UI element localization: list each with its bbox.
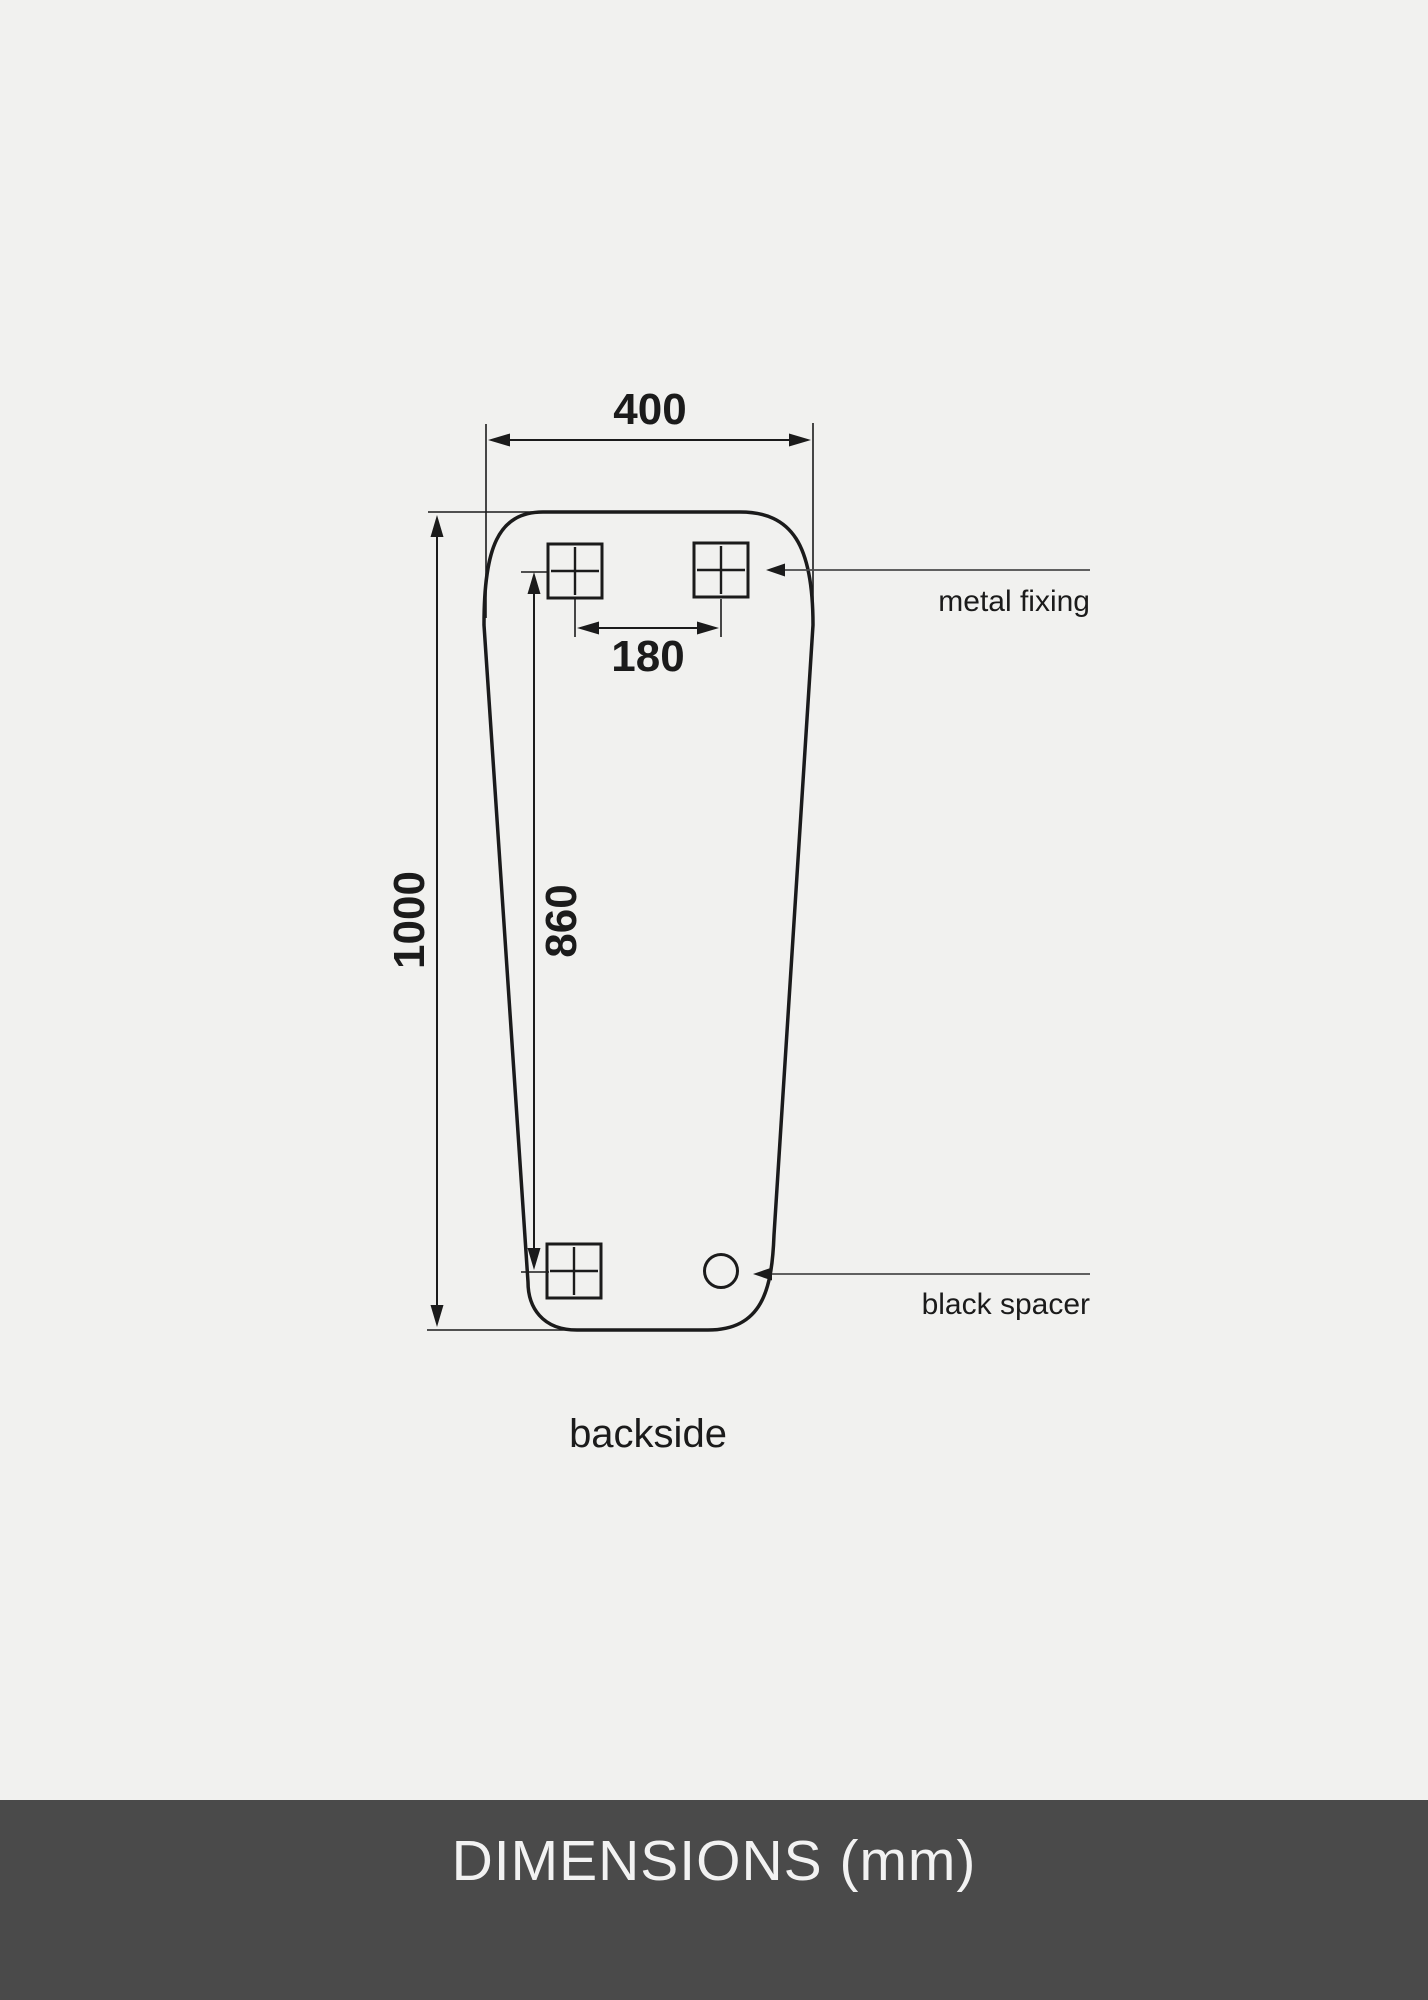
metal-fixing-label: metal fixing — [938, 585, 1090, 618]
footer-title: DIMENSIONS (mm) — [452, 1828, 977, 1894]
view-label: backside — [569, 1412, 727, 1456]
black-spacer-circle — [705, 1255, 738, 1288]
leader-arrow-metal-fixing — [766, 564, 785, 577]
dim-label-860: 860 — [537, 884, 586, 957]
dim-label-400: 400 — [613, 385, 686, 434]
dim-arrow-180-left — [577, 622, 599, 635]
metal-fixing-marker-top-right — [694, 543, 748, 597]
dim-label-180: 180 — [611, 632, 684, 681]
dim-arrow-1000-bottom — [431, 1305, 444, 1327]
metal-fixing-marker-bottom — [547, 1244, 601, 1298]
dim-arrow-860-top — [528, 572, 541, 594]
dim-arrow-400-right — [789, 434, 811, 447]
dimension-diagram: 400 1000 860 180 — [0, 0, 1428, 1800]
dim-arrow-860-bottom — [528, 1248, 541, 1270]
metal-fixing-marker-top-left — [548, 544, 602, 598]
black-spacer-label: black spacer — [922, 1288, 1090, 1321]
leader-arrow-black-spacer — [753, 1268, 772, 1281]
dim-arrow-180-right — [697, 622, 719, 635]
page-background: { "page": { "background": "#f1f1ef" }, "… — [0, 0, 1428, 2000]
dim-arrow-1000-top — [431, 515, 444, 537]
dim-arrow-400-left — [488, 434, 510, 447]
dim-label-1000: 1000 — [385, 871, 434, 969]
footer-bar: DIMENSIONS (mm) — [0, 1800, 1428, 2000]
